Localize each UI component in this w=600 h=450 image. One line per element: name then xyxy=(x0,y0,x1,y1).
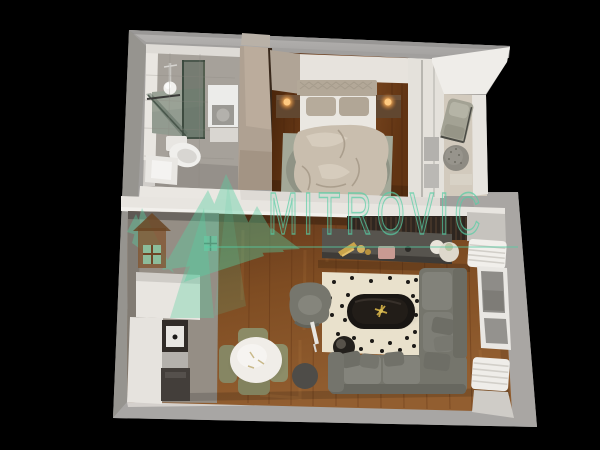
svg-text:MITROVIC: MITROVIC xyxy=(268,182,486,247)
